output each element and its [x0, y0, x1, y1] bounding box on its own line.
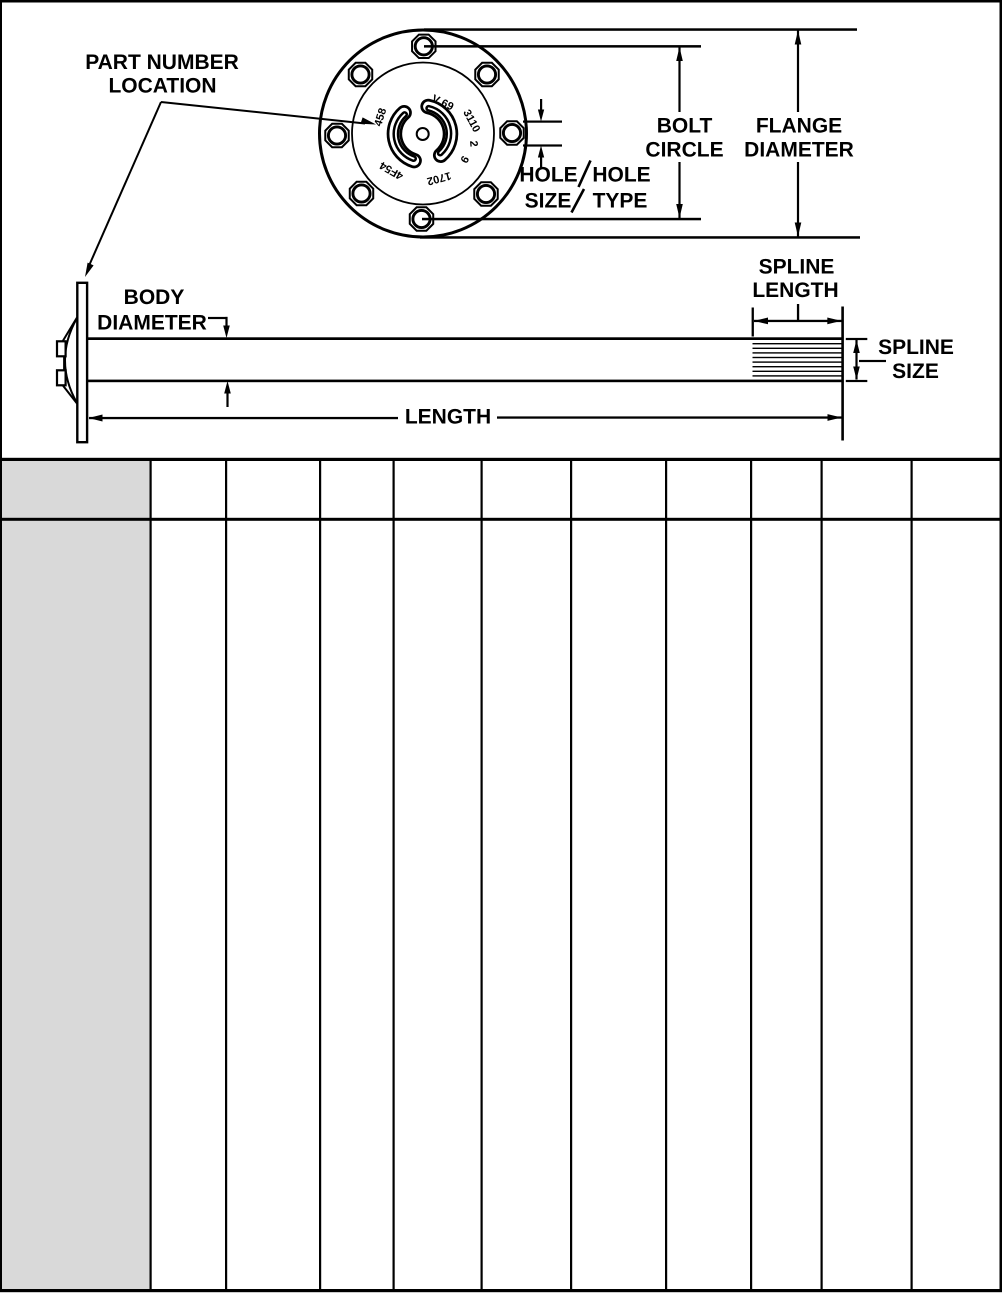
- svg-text:BOLT: BOLT: [657, 115, 713, 138]
- svg-text:SPLINE: SPLINE: [878, 336, 954, 359]
- svg-text:2: 2: [467, 140, 479, 147]
- svg-text:HOLE: HOLE: [519, 164, 577, 187]
- svg-text:LOCATION: LOCATION: [108, 75, 216, 98]
- svg-text:DIAMETER: DIAMETER: [744, 139, 854, 162]
- svg-text:FLANGE: FLANGE: [756, 115, 842, 138]
- svg-text:LENGTH: LENGTH: [752, 279, 838, 302]
- svg-text:TYPE: TYPE: [593, 190, 648, 213]
- svg-text:BODY: BODY: [124, 286, 185, 309]
- svg-text:LENGTH: LENGTH: [405, 406, 491, 429]
- svg-text:CIRCLE: CIRCLE: [645, 139, 723, 162]
- svg-text:SPLINE: SPLINE: [759, 256, 835, 279]
- svg-text:SIZE: SIZE: [892, 360, 939, 383]
- svg-text:DIAMETER: DIAMETER: [97, 312, 207, 335]
- svg-text:HOLE: HOLE: [592, 164, 650, 187]
- svg-text:SIZE: SIZE: [525, 190, 572, 213]
- svg-text:PART NUMBER: PART NUMBER: [85, 51, 239, 74]
